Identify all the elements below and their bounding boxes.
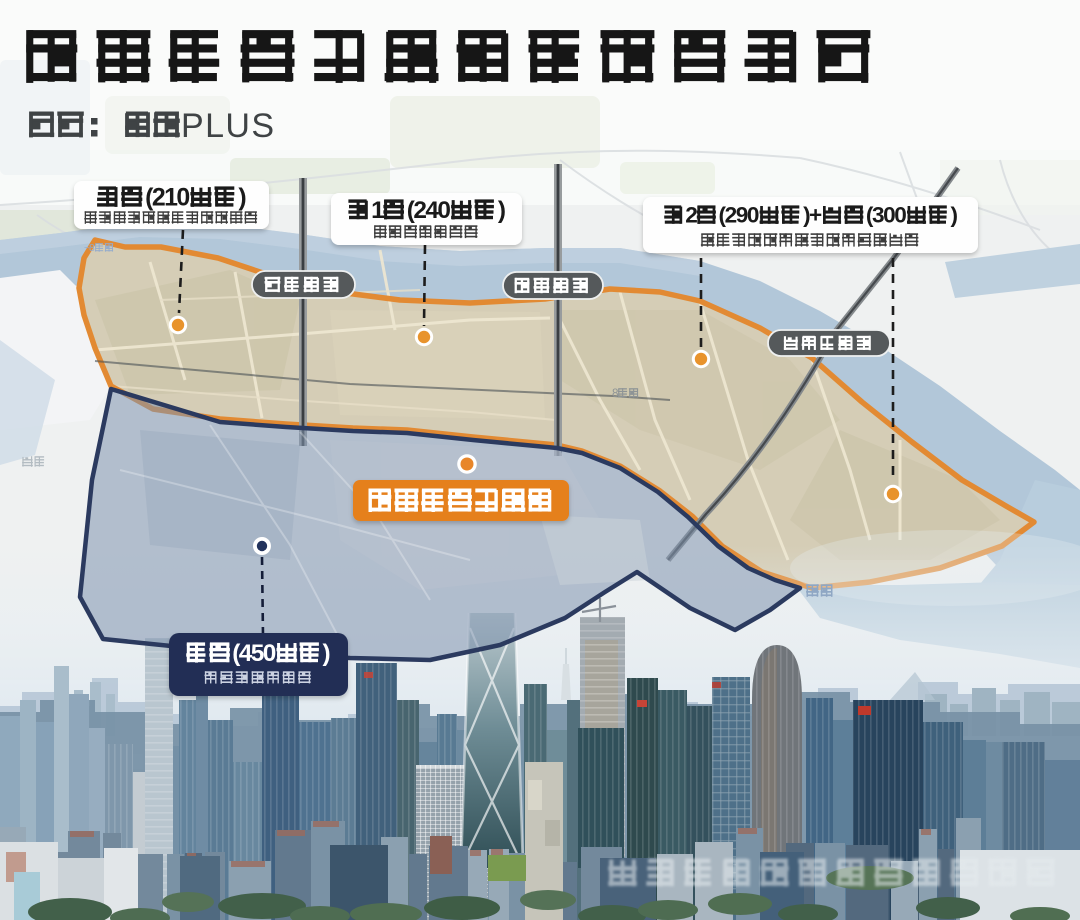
svg-text:): ): [951, 203, 959, 228]
svg-text:(240: (240: [407, 197, 451, 224]
svg-text:1: 1: [371, 197, 385, 224]
svg-text:2: 2: [685, 203, 698, 228]
svg-text:8: 8: [612, 387, 618, 400]
svg-text:): ): [323, 640, 331, 667]
svg-text:(450: (450: [232, 640, 276, 667]
svg-text:): ): [238, 183, 246, 211]
svg-text:(290: (290: [719, 203, 760, 228]
svg-text:): ): [498, 197, 506, 224]
svg-text:~8: ~8: [84, 243, 95, 254]
svg-text:)+: )+: [803, 203, 822, 228]
svg-text:PLUS: PLUS: [181, 107, 274, 145]
svg-text:(210: (210: [145, 183, 190, 211]
svg-text:(300: (300: [866, 203, 907, 228]
